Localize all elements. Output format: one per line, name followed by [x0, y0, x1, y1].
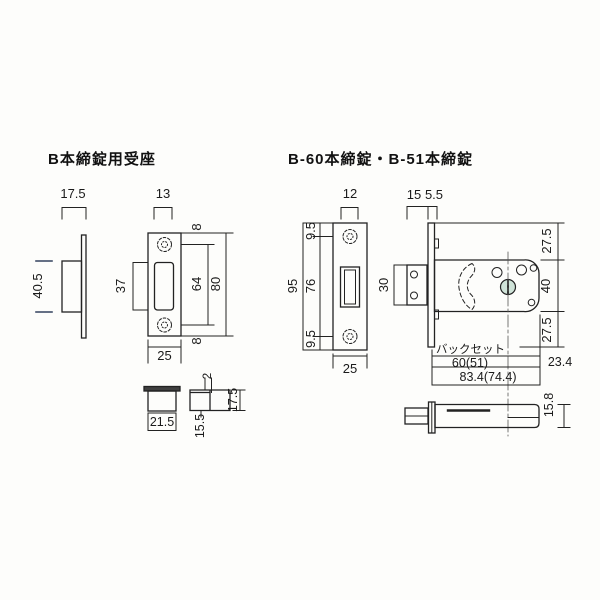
- dim-label-27-5-bottom: 27.5: [540, 308, 554, 352]
- dim-label-25-left: 25: [144, 349, 185, 363]
- dim-bracket-15-5-5: [407, 207, 437, 220]
- screw-hole-icon: [343, 230, 357, 244]
- dim-label-37: 37: [114, 264, 128, 308]
- dim-label-8-top: 8: [190, 205, 204, 249]
- screw-hole-icon: [343, 330, 357, 344]
- lock-body-side-view: [394, 207, 539, 437]
- case-top: [435, 405, 539, 428]
- bolt-opening-inner: [345, 270, 356, 304]
- dim-label-13: 13: [143, 187, 183, 201]
- case-hole-icon: [528, 299, 535, 306]
- dim-bracket-13: [154, 208, 172, 220]
- dim-label-95: 95: [286, 264, 300, 308]
- dim-label-30: 30: [377, 263, 391, 307]
- dust-box-body: [148, 391, 176, 411]
- strike-front-view: [148, 208, 181, 337]
- screw-hole-icon: [411, 292, 418, 299]
- dim-37: [133, 263, 148, 311]
- backset-label: バックセット: [436, 343, 504, 357]
- dim-label-83-4: 83.4(74.4): [446, 370, 530, 384]
- dim-label-17-5: 17.5: [53, 187, 93, 201]
- strike-box-side: [407, 265, 427, 305]
- dim-30: [394, 265, 407, 305]
- strike-dust-box-edge: [62, 261, 82, 312]
- dim-label-76: 76: [304, 264, 318, 308]
- bolt-opening-outer: [341, 267, 360, 307]
- screw-hole-icon: [347, 234, 353, 240]
- case-hole-icon: [517, 265, 527, 275]
- screw-hole-icon: [347, 334, 353, 340]
- cam-outline: [459, 264, 475, 310]
- dim-label-40: 40: [539, 264, 553, 308]
- bolt-slot: [155, 263, 174, 311]
- drawing-linework: [0, 0, 600, 600]
- case-hole-icon: [492, 268, 502, 278]
- screw-hole-icon: [162, 242, 168, 248]
- dim-label-5-5: 5.5: [419, 188, 449, 202]
- lock-faceplate-front-view: [333, 208, 367, 351]
- dim-15-8: [558, 405, 570, 428]
- case-hole-icon: [530, 265, 537, 272]
- dim-label-17-5-side: 17.5: [226, 378, 240, 422]
- strike-plate-front: [148, 233, 181, 336]
- dim-label-15-5: 15.5: [193, 404, 207, 448]
- backset-value: 60(51): [436, 356, 504, 370]
- dim-label-40-5: 40.5: [31, 264, 45, 308]
- dim-label-25-right: 25: [330, 362, 370, 376]
- strike-plate-edge: [82, 235, 87, 338]
- dim-bracket-12: [341, 208, 358, 220]
- dim-label-12: 12: [330, 187, 370, 201]
- dim-label-80: 80: [209, 262, 223, 306]
- right-drawing-title: B-60本締錠・B-51本締錠: [288, 148, 473, 169]
- dim-bracket-17-5: [62, 208, 86, 220]
- dim-label-21-5: 21.5: [146, 415, 178, 429]
- dim-label-9-5-top: 9.5: [304, 209, 318, 253]
- dim-label-2: 2: [201, 354, 215, 398]
- dim-label-27-5-top: 27.5: [540, 219, 554, 263]
- screw-hole-icon: [158, 238, 172, 252]
- lock-case: [435, 260, 540, 312]
- lock-dimension-diagram: B本締錠用受座 B-60本締錠・B-51本締錠 17.5 13 40.5 37 …: [0, 0, 600, 600]
- dust-box-flange: [144, 387, 180, 392]
- dim-label-23-4: 23.4: [542, 355, 578, 369]
- faceplate-edge: [428, 223, 435, 347]
- screw-hole-icon: [162, 322, 168, 328]
- dim-label-64: 64: [190, 262, 204, 306]
- faceplate-front: [333, 223, 367, 350]
- dim-label-15-8: 15.8: [542, 383, 556, 427]
- left-drawing-title: B本締錠用受座: [48, 148, 156, 169]
- dim-label-9-5-bottom: 9.5: [304, 317, 318, 361]
- screw-hole-icon: [158, 318, 172, 332]
- screw-hole-icon: [411, 271, 418, 278]
